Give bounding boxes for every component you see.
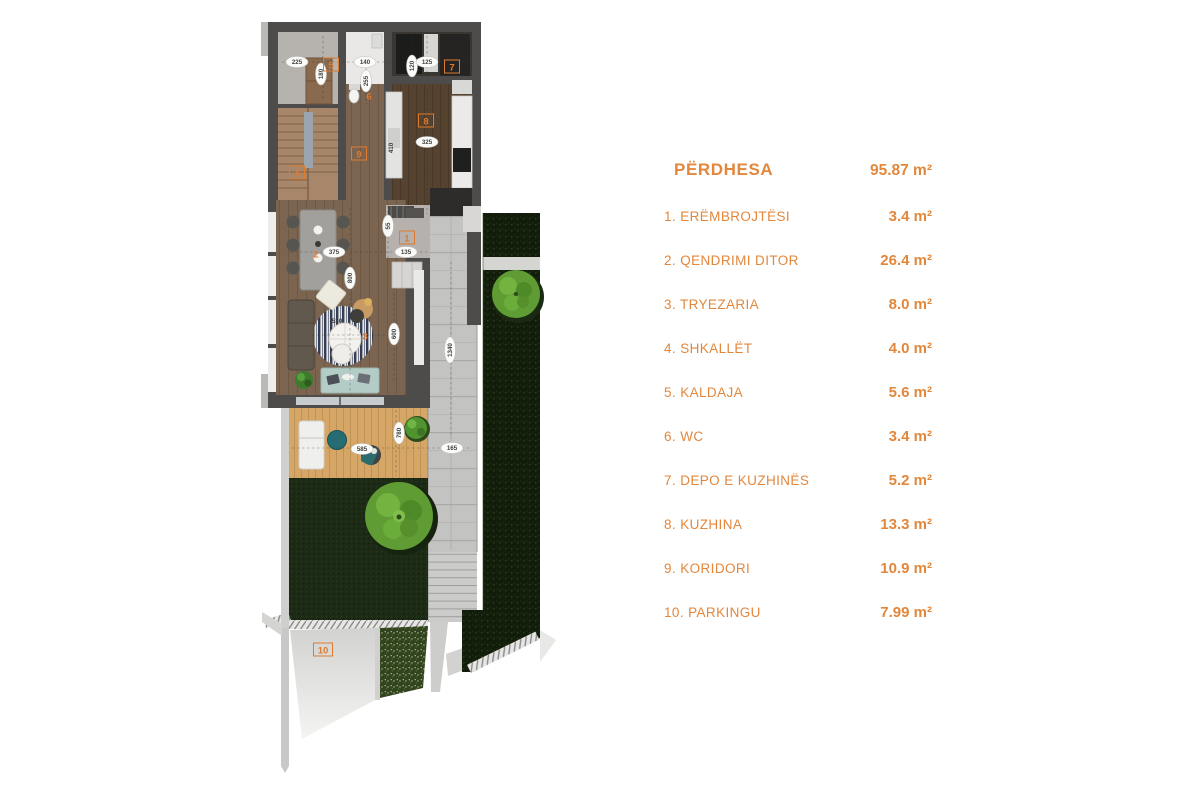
legend-room-label: 6. WC (664, 429, 704, 444)
sofa (288, 300, 314, 370)
dim-label: 165 (441, 443, 463, 454)
svg-text:800: 800 (347, 272, 354, 283)
dim-label: 530 (332, 318, 343, 325)
stair-railing (304, 112, 313, 168)
dim-label: 325 (416, 137, 438, 148)
terrace-door (296, 397, 384, 405)
legend-room-area: 4.0 m² (889, 340, 932, 357)
floor-plan-rendering: 2251801402551201253254105513537580053060… (0, 0, 1200, 800)
legend-room-label: 1. ERËMBROJTËSI (664, 209, 790, 224)
terrace-deck (288, 408, 430, 478)
dim-label: 55 (383, 215, 394, 237)
svg-text:125: 125 (422, 59, 433, 66)
svg-text:600: 600 (391, 328, 398, 339)
legend-room-label: 4. SHKALLËT (664, 341, 752, 356)
room-number-1: 1 (404, 234, 410, 245)
dim-label: 135 (395, 247, 417, 258)
hedge-gap-walk (483, 257, 540, 270)
svg-text:410: 410 (388, 142, 395, 153)
room-number-4: 4 (294, 169, 300, 180)
dim-label: 600 (389, 323, 400, 345)
legend-row: 8. KUZHINA 13.3 m² (664, 516, 932, 533)
svg-text:375: 375 (329, 249, 340, 256)
svg-text:120: 120 (409, 60, 416, 71)
legend-room-label: 9. KORIDORI (664, 561, 750, 576)
dim-label: 585 (351, 444, 373, 455)
svg-text:780: 780 (396, 427, 403, 438)
room-number-7: 7 (449, 63, 454, 74)
boundary-wall-left (281, 628, 289, 773)
legend-room-area: 7.99 m² (880, 604, 932, 621)
svg-text:585: 585 (357, 446, 368, 453)
svg-text:1340: 1340 (447, 343, 454, 357)
dim-label: 375 (323, 247, 345, 258)
dim-label: 780 (394, 422, 405, 444)
svg-text:55: 55 (385, 222, 392, 229)
dim-label: 1340 (445, 337, 456, 363)
legend-room-area: 10.9 m² (880, 560, 932, 577)
legend-row: 10. PARKINGU 7.99 m² (664, 604, 932, 621)
legend-room-area: 5.2 m² (889, 472, 932, 489)
legend-room-label: 2. QENDRIMI DITOR (664, 253, 799, 268)
legend-row: 6. WC 3.4 m² (664, 428, 932, 445)
lounge-chair (299, 421, 324, 469)
pouf-table (328, 431, 347, 450)
legend-row: 1. ERËMBROJTËSI 3.4 m² (664, 208, 932, 225)
svg-text:225: 225 (292, 59, 303, 66)
legend-row: 5. KALDAJA 5.6 m² (664, 384, 932, 401)
legend-room-area: 3.4 m² (889, 208, 932, 225)
dim-label: 255 (361, 70, 372, 92)
dim-label: 800 (345, 267, 356, 289)
room-number-3: 3 (362, 332, 367, 343)
dim-label: 125 (416, 57, 438, 68)
wc-sink (372, 34, 382, 48)
indoor-plant (295, 371, 313, 389)
entry-door-opening (463, 206, 481, 232)
legend-row: 3. TRYEZARIA 8.0 m² (664, 296, 932, 313)
room-number-6: 6 (366, 92, 371, 103)
room-number-9: 9 (356, 150, 361, 161)
legend-room-label: 10. PARKINGU (664, 605, 761, 620)
svg-text:530: 530 (332, 318, 343, 325)
dim-label: 410 (388, 142, 395, 153)
dim-label: 225 (286, 57, 308, 68)
deck-plant (404, 416, 430, 442)
legend-title: PËRDHESA (674, 160, 773, 180)
legend-row: 7. DEPO E KUZHINËS 5.2 m² (664, 472, 932, 489)
svg-text:255: 255 (363, 75, 370, 86)
svg-text:135: 135 (401, 249, 412, 256)
legend-room-area: 8.0 m² (889, 296, 932, 313)
legend-title-area: 95.87 m² (870, 162, 932, 180)
svg-text:325: 325 (422, 139, 433, 146)
legend-room-area: 3.4 m² (889, 428, 932, 445)
side-chair (350, 309, 364, 323)
dim-label: 140 (354, 57, 376, 68)
legend-row: 2. QENDRIMI DITOR 26.4 m² (664, 252, 932, 269)
room-number-8: 8 (423, 117, 428, 128)
shrub-patch (380, 626, 428, 698)
legend-title-row: PËRDHESA 95.87 m² (664, 160, 932, 180)
room-number-5: 5 (328, 61, 334, 72)
legend-rows: 1. ERËMBROJTËSI 3.4 m² 2. QENDRIMI DITOR… (664, 208, 932, 621)
room-number-2: 2 (313, 250, 318, 261)
floor-plan-page: 2251801402551201253254105513537580053060… (0, 0, 1200, 800)
legend-room-area: 13.3 m² (880, 516, 932, 533)
dim-label: 180 (316, 63, 327, 85)
legend-room-label: 5. KALDAJA (664, 385, 743, 400)
svg-text:140: 140 (360, 59, 371, 66)
svg-text:165: 165 (447, 445, 458, 452)
legend-room-label: 8. KUZHINA (664, 517, 742, 532)
dim-label: 120 (407, 55, 418, 77)
svg-text:180: 180 (318, 68, 325, 79)
legend-row: 4. SHKALLËT 4.0 m² (664, 340, 932, 357)
toilet (349, 84, 360, 103)
area-legend: PËRDHESA 95.87 m² 1. ERËMBROJTËSI 3.4 m²… (664, 160, 932, 648)
room-number-10: 10 (318, 646, 329, 657)
legend-room-label: 7. DEPO E KUZHINËS (664, 473, 809, 488)
legend-room-label: 3. TRYEZARIA (664, 297, 759, 312)
legend-row: 9. KORIDORI 10.9 m² (664, 560, 932, 577)
legend-room-area: 26.4 m² (880, 252, 932, 269)
legend-room-area: 5.6 m² (889, 384, 932, 401)
